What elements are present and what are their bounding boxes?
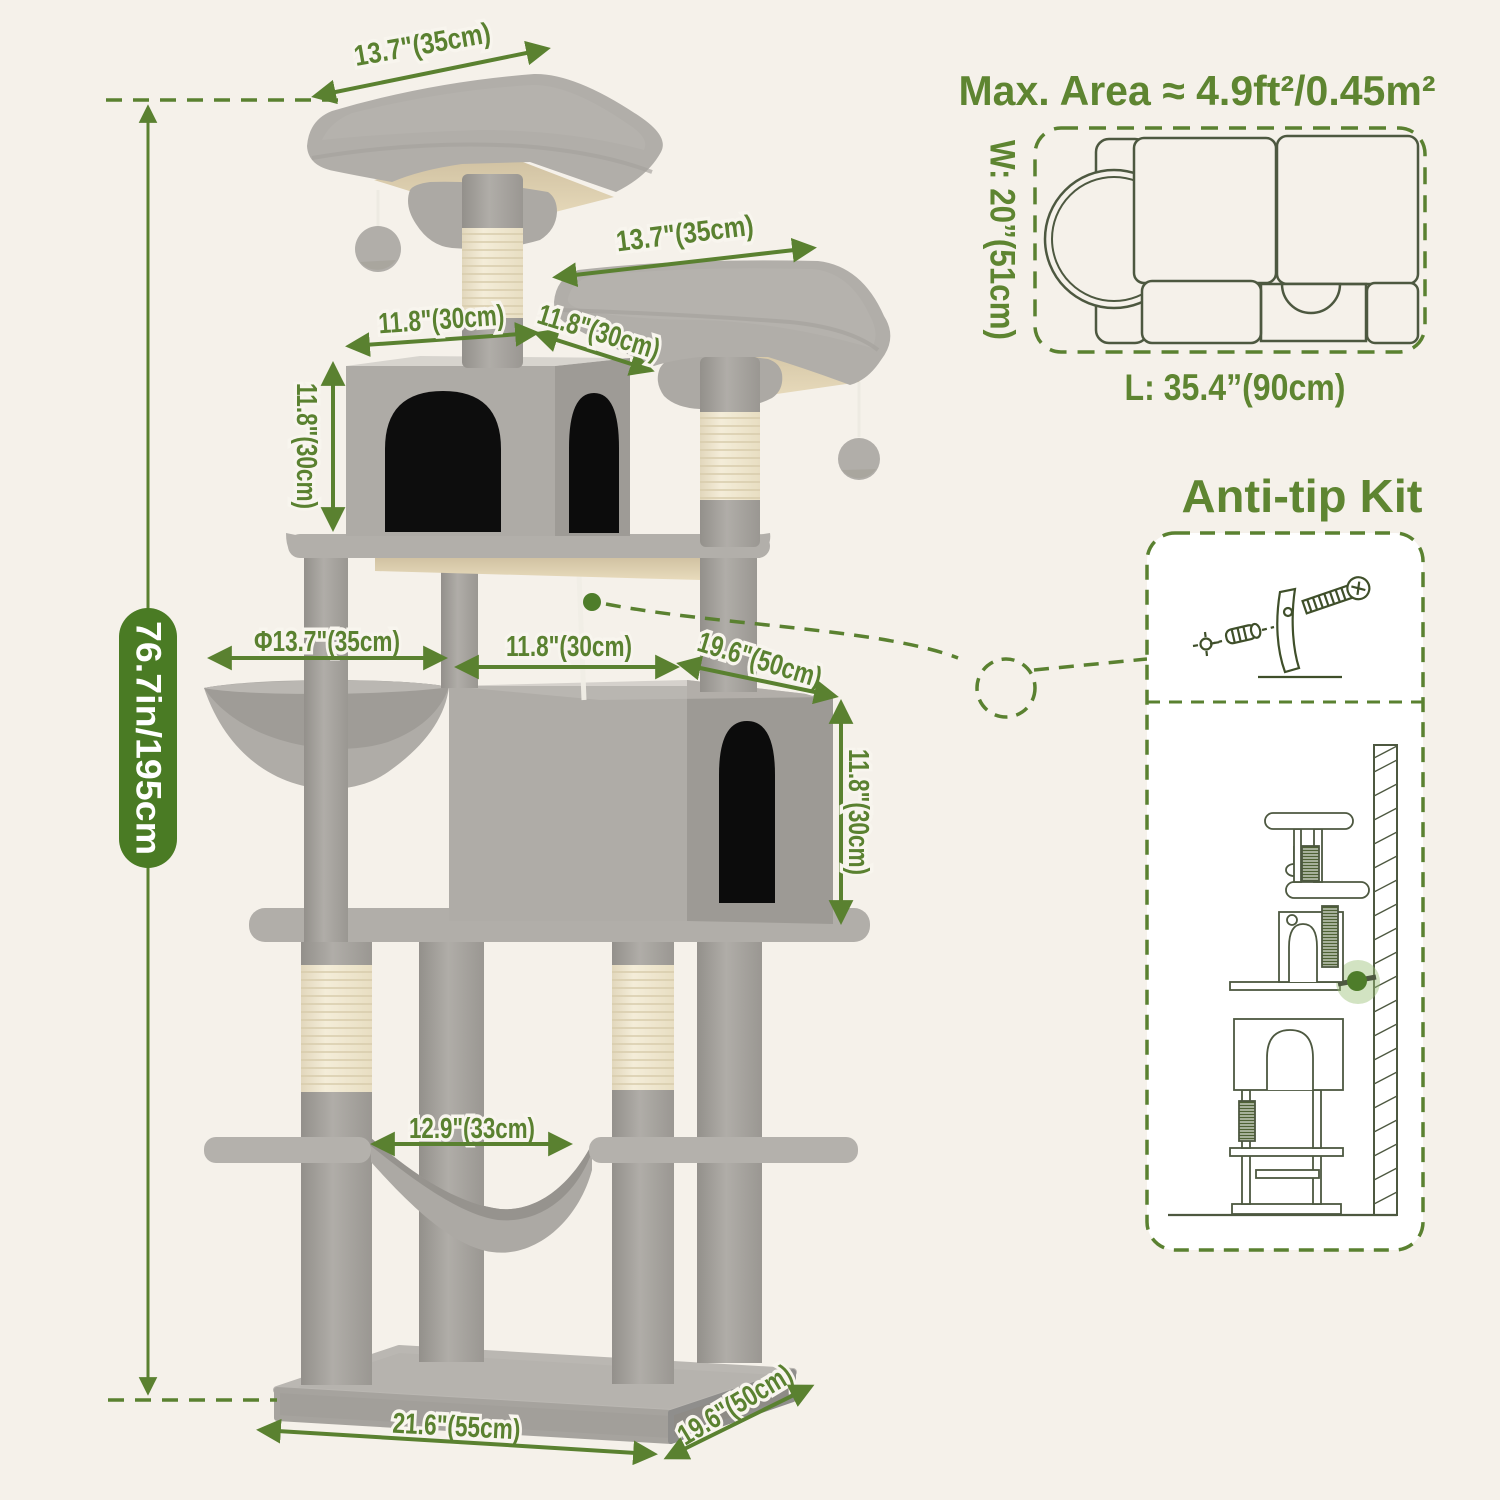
svg-text:Φ13.7"(35cm): Φ13.7"(35cm) [254,626,400,658]
svg-text:12.9"(33cm): 12.9"(33cm) [409,1113,535,1145]
svg-text:W: 20”(51cm): W: 20”(51cm) [983,140,1022,340]
svg-text:L: 35.4”(90cm): L: 35.4”(90cm) [1125,367,1346,408]
svg-text:11.8"(30cm): 11.8"(30cm) [290,383,322,509]
svg-text:Anti-tip Kit: Anti-tip Kit [1182,470,1423,522]
svg-text:Max. Area ≈ 4.9ft²/0.45m²: Max. Area ≈ 4.9ft²/0.45m² [959,67,1436,114]
svg-text:11.8"(30cm): 11.8"(30cm) [506,631,632,663]
svg-text:76.7in/195cm: 76.7in/195cm [129,621,168,855]
svg-text:11.8"(30cm): 11.8"(30cm) [842,749,874,875]
